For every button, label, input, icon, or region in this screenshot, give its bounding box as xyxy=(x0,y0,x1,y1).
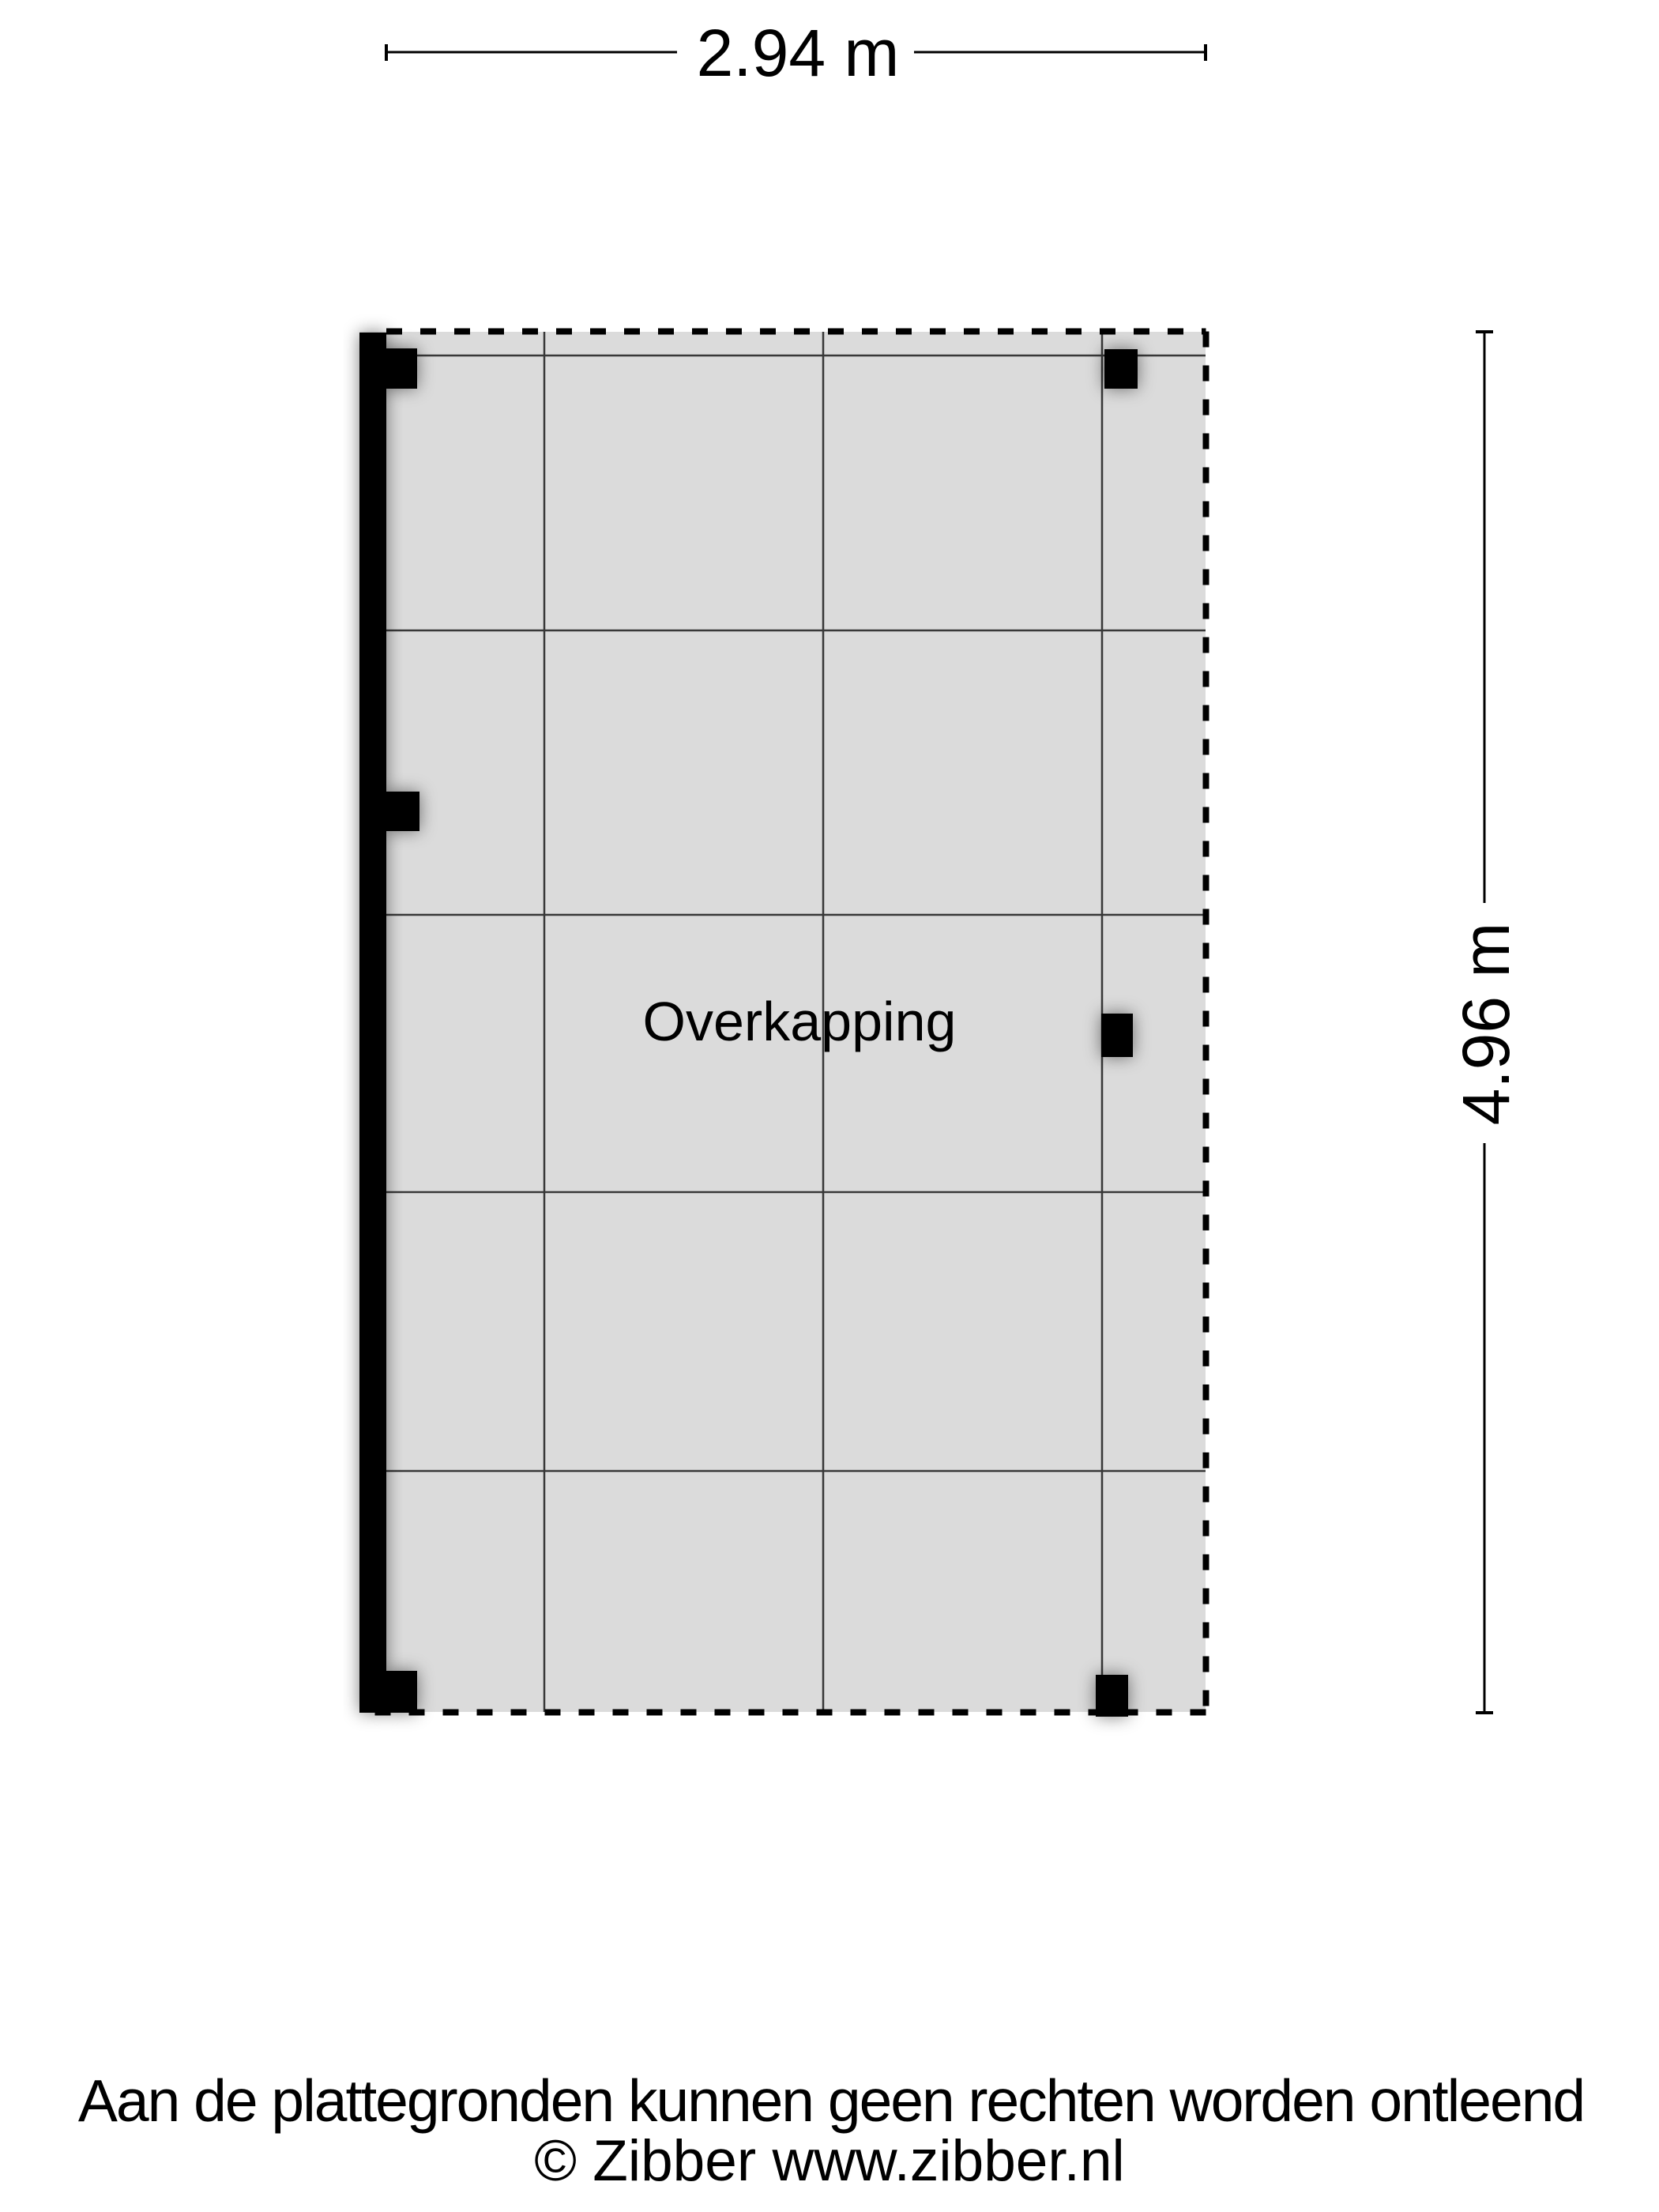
svg-text:Overkapping: Overkapping xyxy=(643,991,957,1052)
svg-text:4.96 m: 4.96 m xyxy=(1449,923,1523,1126)
svg-text:© Zibber www.zibber.nl: © Zibber www.zibber.nl xyxy=(534,2129,1125,2193)
svg-text:2.94 m: 2.94 m xyxy=(697,16,900,90)
svg-text:Aan de plattegronden kunnen ge: Aan de plattegronden kunnen geen rechten… xyxy=(78,2067,1584,2134)
